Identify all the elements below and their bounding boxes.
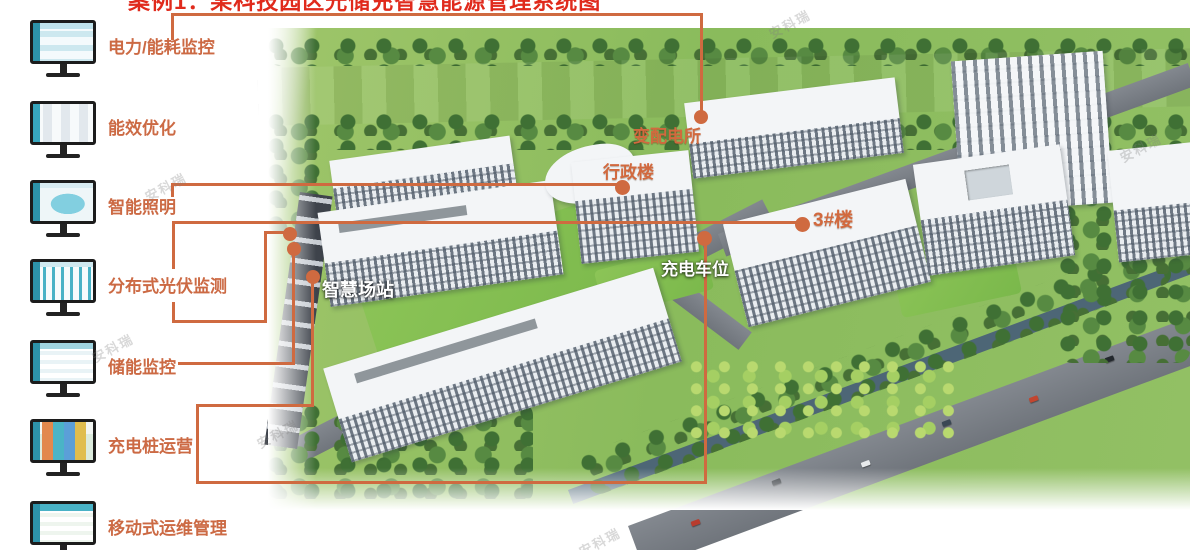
connector-substation: [171, 13, 174, 40]
connector-dot-charging-parking: [697, 231, 712, 246]
monitor-base: [46, 73, 80, 77]
courtyard-opening: [965, 165, 1013, 200]
monitor-screen-ops: [30, 501, 96, 545]
connector-dot-building3: [795, 217, 810, 232]
connector-building3: [172, 221, 175, 269]
slide-canvas: 案例1：某科技园区光储充智慧能源管理系统图: [0, 0, 1190, 550]
connector-dot-pv-roof: [283, 227, 297, 241]
car: [1029, 395, 1039, 403]
monitor-icon: [30, 20, 96, 77]
monitor-screen-efficiency: [30, 101, 96, 145]
connector-storage: [178, 362, 295, 365]
car: [691, 519, 701, 527]
monitor-stand: [60, 545, 67, 550]
module-lighting: 智能照明: [30, 180, 176, 237]
building-far-east: [1107, 142, 1190, 263]
module-label: 储能监控: [108, 353, 176, 397]
module-storage: 储能监控: [30, 340, 176, 397]
map-label-charging-parking: 充电车位: [661, 255, 729, 280]
monitor-base: [46, 233, 80, 237]
aerial-campus-rendering: [268, 28, 1190, 510]
monitor-stand: [60, 384, 67, 393]
connector-storage: [292, 249, 295, 365]
module-pv: 分布式光伏监测: [30, 259, 227, 316]
module-label: 分布式光伏监测: [108, 272, 227, 316]
monitor-screen-lighting: [30, 180, 96, 224]
watermark: 安科瑞: [575, 523, 624, 550]
module-label: 智能照明: [108, 193, 176, 237]
monitor-stand: [60, 463, 67, 472]
module-label: 电力/能耗监控: [108, 33, 215, 77]
monitor-base: [46, 472, 80, 476]
car: [861, 460, 871, 468]
connector-substation: [171, 13, 703, 16]
module-label: 能效优化: [108, 114, 176, 158]
monitor-stand: [60, 303, 67, 312]
monitor-base: [46, 312, 80, 316]
monitor-base: [46, 393, 80, 397]
connector-pv-roof: [264, 231, 267, 323]
monitor-screen-energy: [30, 20, 96, 64]
module-energy-monitoring: 电力/能耗监控: [30, 20, 215, 77]
monitor-icon: [30, 340, 96, 397]
connector-charging: [196, 481, 707, 484]
map-label-admin-building: 行政楼: [603, 158, 654, 183]
connector-dot-storage: [287, 242, 301, 256]
monitor-screen-charging: [30, 419, 96, 463]
monitor-stand: [60, 224, 67, 233]
monitor-stand: [60, 145, 67, 154]
module-label: 移动式运维管理: [108, 514, 227, 550]
connector-admin: [171, 183, 622, 186]
monitor-icon: [30, 419, 96, 476]
connector-charging: [196, 404, 314, 407]
connector-building3: [172, 221, 802, 224]
map-label-substation: 变配电所: [633, 122, 701, 147]
connector-charging: [311, 277, 314, 407]
connector-substation: [700, 13, 703, 114]
module-label: 充电桩运营: [108, 432, 193, 476]
monitor-icon: [30, 101, 96, 158]
connector-dot-smart-station: [306, 270, 320, 284]
courtyard-podium: [913, 144, 1075, 276]
module-mobile-ops: 移动式运维管理: [30, 501, 227, 550]
building-facade: [689, 118, 904, 179]
building-facade: [921, 200, 1075, 276]
map-label-smart-station: 智慧场站: [322, 276, 394, 302]
roof-skylight: [338, 205, 467, 232]
building-facade: [575, 189, 699, 264]
monitor-screen-storage: [30, 340, 96, 384]
module-efficiency: 能效优化: [30, 101, 176, 158]
monitor-stand: [60, 64, 67, 73]
building-facade: [1114, 202, 1190, 263]
connector-pv-roof: [172, 320, 267, 323]
monitor-base: [46, 154, 80, 158]
monitor-icon: [30, 501, 96, 550]
monitor-icon: [30, 259, 96, 316]
monitor-icon: [30, 180, 96, 237]
module-charging: 充电桩运营: [30, 419, 193, 476]
reeds-near-canal: [688, 358, 958, 443]
car: [771, 478, 781, 486]
map-label-building-3: 3#楼: [813, 205, 853, 232]
connector-charging: [196, 404, 199, 484]
monitor-screen-pv: [30, 259, 96, 303]
